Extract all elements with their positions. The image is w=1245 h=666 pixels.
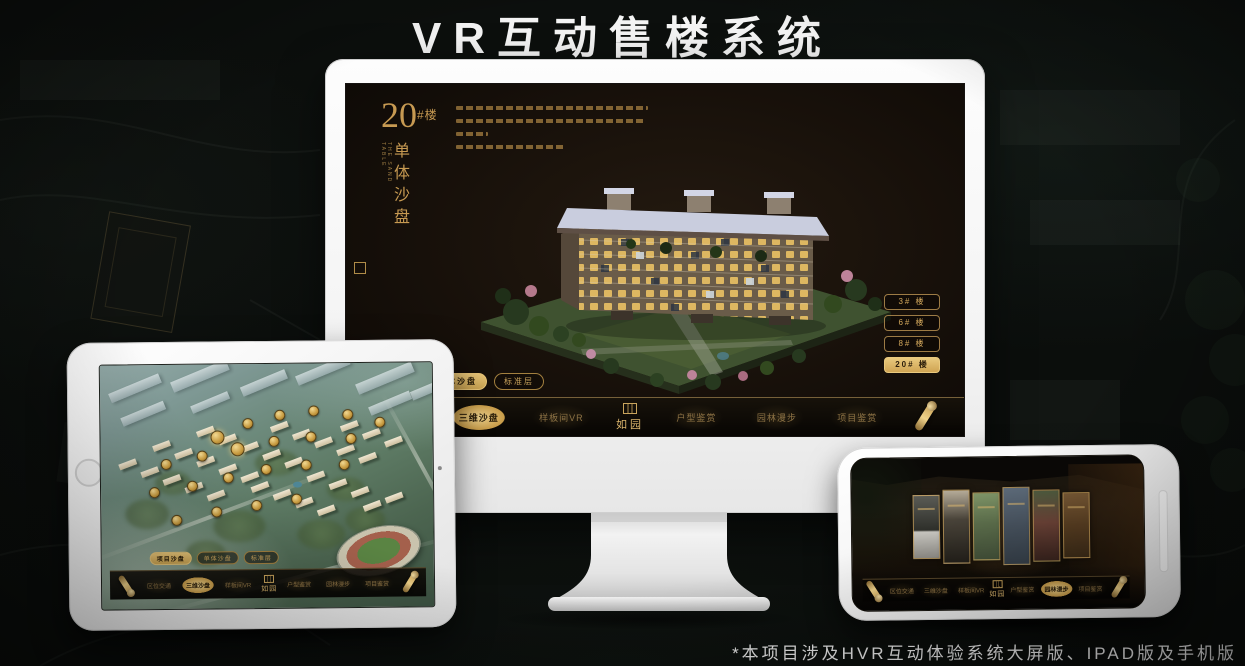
building-marker[interactable] [210, 430, 224, 444]
scroll-icon[interactable] [1110, 577, 1127, 599]
pool [293, 482, 302, 488]
building-marker[interactable] [342, 409, 353, 420]
nav-item-project-gallery[interactable]: 项目鉴赏 [1073, 579, 1107, 596]
scene-panel[interactable] [973, 492, 1001, 560]
building-marker[interactable] [223, 472, 234, 483]
tablet-mode-tabs: 项目沙盘 单体沙盘 标准层 [150, 551, 279, 565]
camera-icon [438, 466, 442, 470]
nav-item-location-traffic[interactable]: 区位交通 [142, 576, 176, 593]
building-button-6[interactable]: 6# 楼 [884, 315, 940, 331]
building-button-20[interactable]: 20# 楼 [884, 357, 940, 373]
nav-item-garden-stroll[interactable]: 园林漫步 [749, 404, 805, 431]
building-selector: 3# 楼 6# 楼 8# 楼 20# 楼 [884, 294, 940, 373]
building-marker[interactable] [149, 487, 160, 498]
footnote: *本项目涉及HVR互动体验系统大屏版、IPAD版及手机版 [732, 639, 1237, 664]
building-marker[interactable] [291, 494, 302, 505]
building-marker[interactable] [197, 451, 208, 462]
nav-item-location-traffic[interactable]: 区位交通 [885, 582, 919, 599]
nav-item-garden-stroll[interactable]: 园林漫步 [1039, 580, 1073, 597]
nav-item-showroom-vr[interactable]: 样板间VR [531, 404, 592, 431]
building-marker[interactable] [171, 515, 182, 526]
building-marker[interactable] [187, 481, 198, 492]
tab-standard-floor[interactable]: 标准层 [244, 551, 279, 564]
phone-screen-scene-gallery: 区位交通 三维沙盘 样板间VR 如园 户型鉴赏 园林漫步 项目鉴赏 [850, 454, 1146, 612]
nav-item-garden-stroll[interactable]: 园林漫步 [321, 575, 355, 592]
ruyuan-logo[interactable]: 如园 [261, 574, 277, 593]
ruyuan-logo-text: 如园 [989, 589, 1005, 599]
scene-panel-gallery [912, 486, 1085, 566]
ruyuan-logo-text: 如园 [261, 583, 277, 593]
monitor-stand [534, 513, 784, 618]
tab-standard-floor[interactable]: 标准层 [494, 373, 544, 390]
tab-single-building-sandbox[interactable]: 单体沙盘 [197, 551, 239, 564]
ruyuan-logo[interactable]: 如园 [989, 580, 1005, 599]
building-marker[interactable] [268, 436, 279, 447]
building-3d-render[interactable] [461, 144, 891, 394]
scroll-icon[interactable] [913, 402, 936, 432]
building-marker[interactable] [308, 405, 319, 416]
nav-item-project-gallery[interactable]: 项目鉴赏 [360, 574, 394, 591]
building-marker[interactable] [161, 459, 172, 470]
scene-panel[interactable] [942, 489, 970, 563]
nav-item-3d-sandbox[interactable]: 三维沙盘 [919, 581, 953, 598]
nav-item-3d-sandbox[interactable]: 三维沙盘 [451, 404, 507, 431]
nav-item-project-gallery[interactable]: 项目鉴赏 [829, 404, 885, 431]
scene-panel[interactable] [1032, 489, 1060, 561]
ruyuan-seal-icon [264, 574, 274, 582]
building-marker[interactable] [211, 506, 222, 517]
ruyuan-logo[interactable]: 如园 [616, 403, 644, 432]
ruyuan-seal-icon [992, 580, 1002, 588]
building-marker[interactable] [301, 459, 312, 470]
building-marker[interactable] [345, 433, 356, 444]
nav-item-floorplan-gallery[interactable]: 户型鉴赏 [668, 404, 724, 431]
tablet-bottom-nav: 区位交通 三维沙盘 样板间VR 如园 户型鉴赏 园林漫步 项目鉴赏 [110, 567, 426, 599]
building-marker[interactable] [242, 418, 253, 429]
building-marker[interactable] [305, 431, 316, 442]
nav-item-floorplan-gallery[interactable]: 户型鉴赏 [282, 575, 316, 592]
scene-panel[interactable] [913, 495, 941, 559]
scroll-icon[interactable] [865, 580, 882, 602]
building-number-suffix: #楼 [417, 108, 438, 122]
nav-item-floorplan-gallery[interactable]: 户型鉴赏 [1005, 580, 1039, 597]
phone-bottom-nav: 区位交通 三维沙盘 样板间VR 如园 户型鉴赏 园林漫步 项目鉴赏 [863, 576, 1130, 602]
nav-item-showroom-vr[interactable]: 样板间VR [953, 581, 990, 598]
scroll-icon[interactable] [118, 575, 135, 597]
building-marker[interactable] [261, 464, 272, 475]
home-indicator [1158, 490, 1168, 572]
building-marker[interactable] [251, 500, 262, 511]
scene-panel[interactable] [1002, 487, 1030, 565]
building-marker[interactable] [231, 442, 245, 456]
ruyuan-logo-text: 如园 [616, 416, 644, 432]
ruyuan-seal-icon [623, 403, 637, 414]
building-button-8[interactable]: 8# 楼 [884, 336, 940, 352]
building-button-3[interactable]: 3# 楼 [884, 294, 940, 310]
page-title: VR互动售楼系统 [0, 2, 1245, 66]
tab-project-sandbox[interactable]: 项目沙盘 [150, 552, 192, 565]
nav-item-3d-sandbox[interactable]: 三维沙盘 [181, 576, 215, 593]
smartphone: 区位交通 三维沙盘 样板间VR 如园 户型鉴赏 园林漫步 项目鉴赏 [837, 444, 1181, 621]
ipad-tablet: 项目沙盘 单体沙盘 标准层 区位交通 三维沙盘 样板间VR 如园 户型鉴赏 园林… [67, 339, 457, 631]
nav-item-showroom-vr[interactable]: 样板间VR [220, 576, 257, 593]
tablet-screen-masterplan: 项目沙盘 单体沙盘 标准层 区位交通 三维沙盘 样板间VR 如园 户型鉴赏 园林… [99, 361, 436, 610]
building-subtitle-en: THE SAND TABLE [380, 142, 392, 212]
subtitle-seal-icon [354, 262, 366, 274]
scene-panel[interactable] [1063, 492, 1091, 558]
scroll-icon[interactable] [402, 571, 419, 593]
building-marker[interactable] [374, 417, 385, 428]
building-marker[interactable] [339, 459, 350, 470]
promo-page: VR互动售楼系统 20#楼 单体沙盘 THE SAND TABLE [0, 0, 1245, 666]
home-button[interactable] [75, 459, 103, 487]
building-marker[interactable] [274, 410, 285, 421]
building-number: 20 [381, 96, 417, 134]
